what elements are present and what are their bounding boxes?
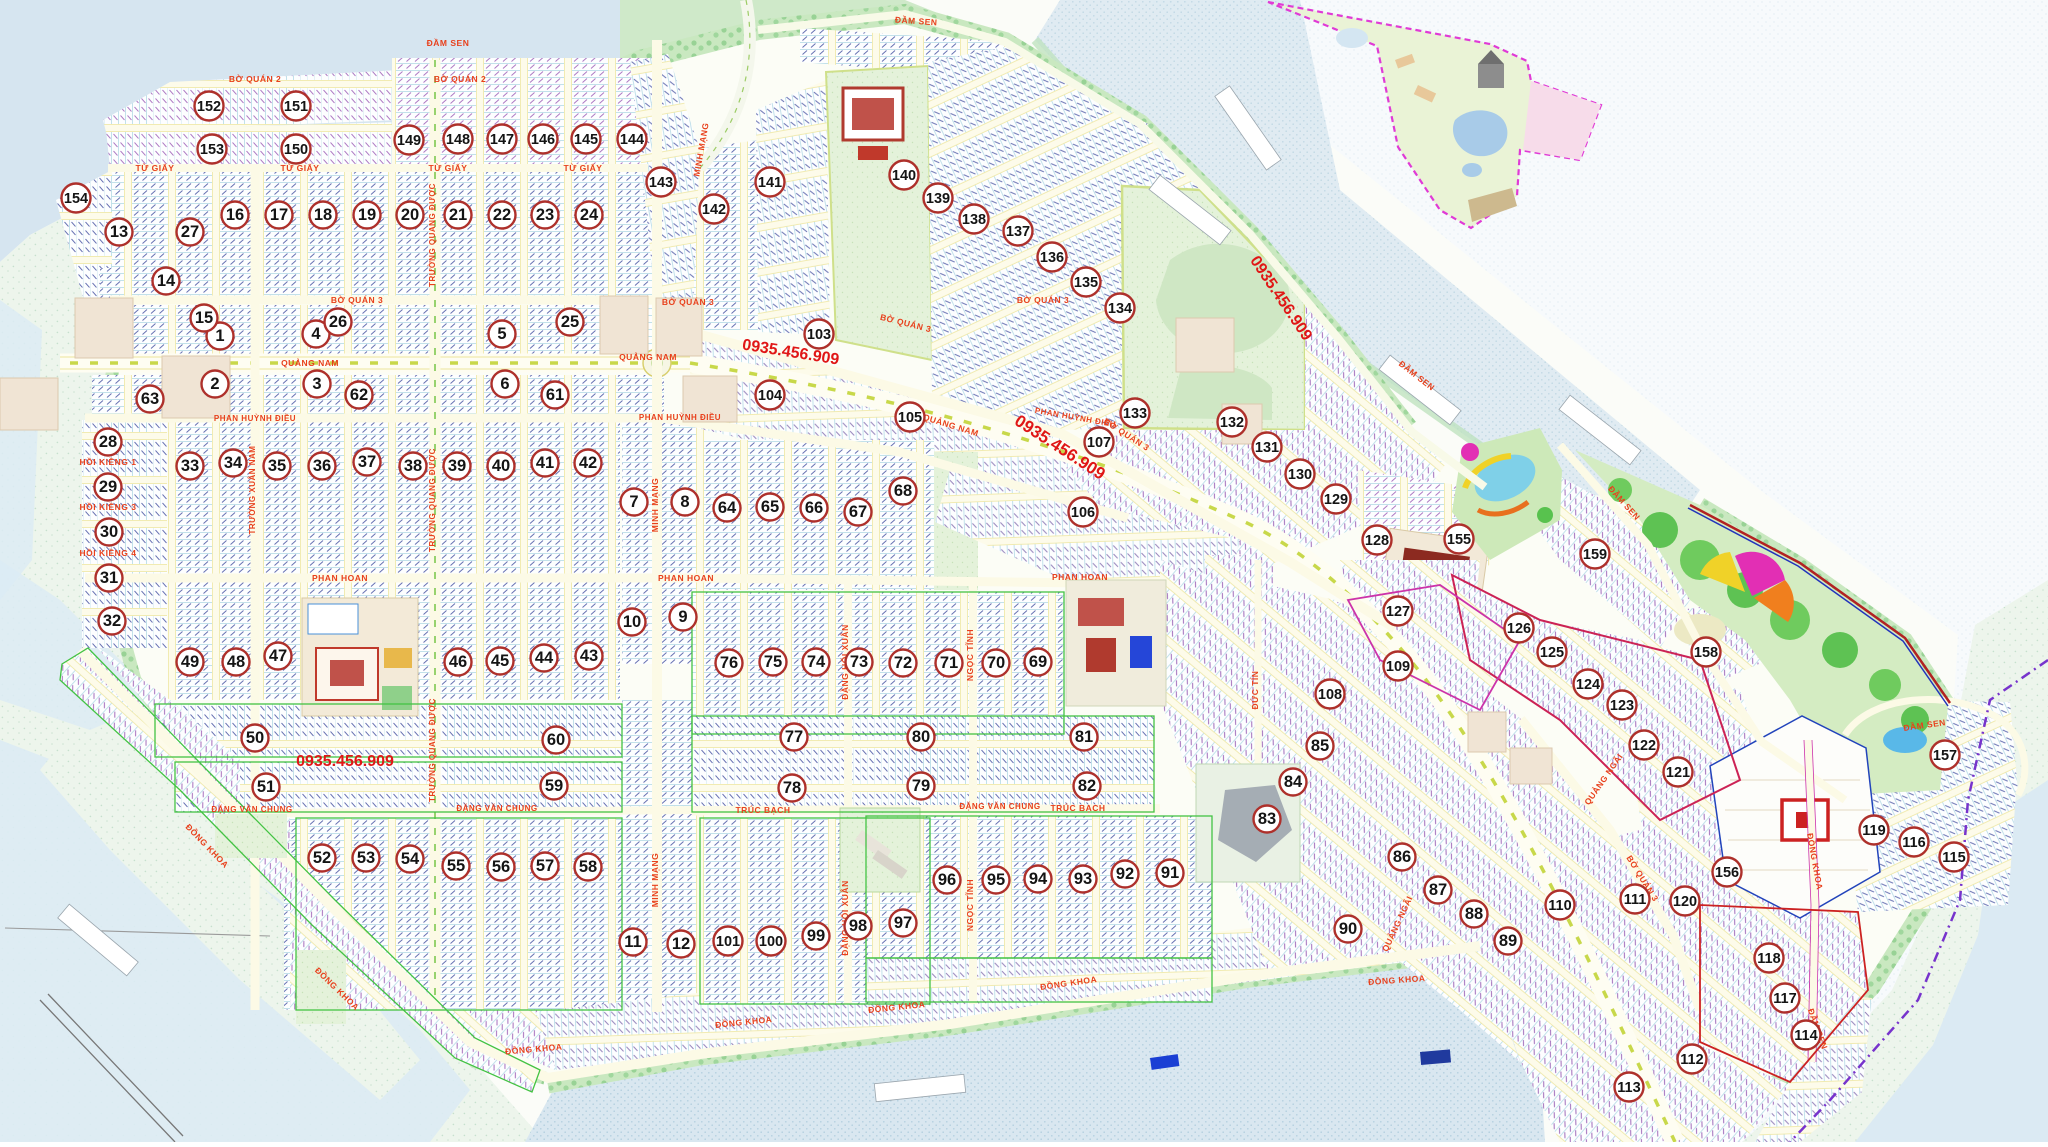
svg-text:TRƯỜNG QUANG ĐƯỢC: TRƯỜNG QUANG ĐƯỢC (428, 448, 437, 552)
svg-text:157: 157 (1933, 748, 1957, 764)
svg-text:66: 66 (805, 499, 823, 517)
svg-text:152: 152 (197, 99, 221, 115)
svg-text:99: 99 (807, 927, 825, 945)
svg-text:PHAN HUỲNH ĐIỀU: PHAN HUỲNH ĐIỀU (639, 412, 721, 422)
svg-text:ĐẶNG VĂN CHUNG: ĐẶNG VĂN CHUNG (211, 805, 292, 814)
svg-text:155: 155 (1447, 532, 1471, 548)
svg-text:55: 55 (447, 857, 465, 875)
svg-text:71: 71 (940, 654, 958, 672)
svg-text:139: 139 (926, 191, 950, 207)
svg-text:BỜ QUÁN 2: BỜ QUÁN 2 (434, 73, 486, 84)
svg-text:76: 76 (720, 654, 738, 672)
svg-text:43: 43 (580, 647, 598, 665)
svg-text:3: 3 (312, 375, 321, 393)
svg-text:57: 57 (536, 857, 554, 875)
svg-text:8: 8 (680, 493, 689, 511)
svg-text:ĐỨC TÍN: ĐỨC TÍN (1249, 671, 1260, 710)
svg-text:111: 111 (1624, 892, 1647, 908)
svg-text:18: 18 (314, 206, 332, 224)
svg-text:52: 52 (313, 849, 331, 867)
svg-text:58: 58 (579, 858, 597, 876)
svg-text:PHAN HOAN: PHAN HOAN (1052, 572, 1108, 582)
svg-text:59: 59 (545, 777, 563, 795)
svg-text:103: 103 (807, 327, 831, 343)
svg-text:87: 87 (1429, 881, 1447, 899)
svg-text:7: 7 (629, 493, 638, 511)
svg-text:19: 19 (358, 206, 376, 224)
svg-text:6: 6 (500, 375, 509, 393)
svg-text:138: 138 (962, 212, 986, 228)
svg-text:TRƯỜNG QUANG ĐƯỢC: TRƯỜNG QUANG ĐƯỢC (428, 183, 437, 287)
svg-text:135: 135 (1074, 275, 1098, 291)
svg-text:27: 27 (181, 223, 199, 241)
svg-text:97: 97 (894, 914, 912, 932)
svg-text:69: 69 (1029, 653, 1047, 671)
svg-text:73: 73 (850, 653, 868, 671)
svg-text:93: 93 (1074, 870, 1092, 888)
svg-text:143: 143 (649, 175, 673, 191)
svg-text:137: 137 (1006, 224, 1030, 240)
svg-text:MINH MẠNG: MINH MẠNG (650, 853, 660, 908)
svg-text:105: 105 (898, 410, 922, 426)
svg-text:124: 124 (1576, 677, 1600, 693)
svg-text:144: 144 (620, 132, 644, 148)
svg-text:35: 35 (268, 457, 286, 475)
svg-text:91: 91 (1161, 864, 1179, 882)
svg-text:79: 79 (912, 777, 930, 795)
svg-text:QUẢNG NAM: QUẢNG NAM (281, 357, 339, 368)
svg-text:107: 107 (1087, 435, 1111, 451)
svg-text:15: 15 (195, 309, 213, 327)
svg-text:149: 149 (397, 133, 421, 149)
svg-text:89: 89 (1499, 932, 1517, 950)
svg-text:100: 100 (759, 934, 783, 950)
svg-text:110: 110 (1548, 898, 1571, 914)
svg-text:108: 108 (1318, 687, 1342, 703)
svg-text:PHAN HOAN: PHAN HOAN (312, 573, 368, 583)
svg-text:122: 122 (1632, 738, 1656, 754)
svg-text:12: 12 (672, 935, 690, 953)
svg-text:150: 150 (284, 142, 308, 158)
svg-text:114: 114 (1794, 1028, 1817, 1044)
svg-text:0935.456.909: 0935.456.909 (296, 753, 394, 770)
svg-text:101: 101 (716, 934, 740, 950)
svg-text:13: 13 (110, 223, 128, 241)
svg-text:16: 16 (226, 206, 244, 224)
svg-text:74: 74 (807, 653, 826, 671)
svg-text:TỪ GIẤY: TỪ GIẤY (429, 162, 468, 173)
svg-text:40: 40 (492, 457, 510, 475)
svg-text:90: 90 (1339, 920, 1357, 938)
svg-text:109: 109 (1386, 659, 1410, 675)
svg-text:TRƯỜNG XUÂN NAM: TRƯỜNG XUÂN NAM (248, 446, 257, 535)
svg-text:92: 92 (1116, 865, 1134, 883)
svg-text:4: 4 (311, 325, 321, 343)
svg-text:88: 88 (1465, 905, 1483, 923)
svg-text:31: 31 (100, 569, 118, 587)
svg-text:TỪ GIẤY: TỪ GIẤY (564, 162, 603, 173)
svg-text:134: 134 (1108, 301, 1132, 317)
svg-text:116: 116 (1902, 835, 1925, 851)
svg-text:80: 80 (912, 728, 930, 746)
svg-text:MINH MẠNG: MINH MẠNG (650, 478, 660, 533)
svg-text:10: 10 (623, 613, 641, 631)
svg-text:65: 65 (761, 498, 779, 516)
svg-text:126: 126 (1507, 621, 1531, 637)
svg-text:119: 119 (1862, 823, 1885, 839)
svg-text:HỒI KIỀNG 1: HỒI KIỀNG 1 (80, 456, 137, 467)
svg-text:84: 84 (1284, 773, 1303, 791)
svg-text:TRÚC BẠCH: TRÚC BẠCH (1050, 802, 1105, 813)
svg-text:34: 34 (224, 454, 243, 472)
svg-text:132: 132 (1220, 415, 1244, 431)
svg-text:39: 39 (448, 457, 466, 475)
svg-text:56: 56 (492, 858, 510, 876)
svg-text:22: 22 (493, 206, 511, 224)
svg-text:83: 83 (1258, 810, 1276, 828)
svg-text:37: 37 (358, 453, 376, 471)
svg-text:TRƯỜNG QUANG ĐƯỢC: TRƯỜNG QUANG ĐƯỢC (428, 698, 437, 802)
svg-text:42: 42 (579, 454, 597, 472)
svg-text:70: 70 (987, 654, 1005, 672)
svg-text:78: 78 (783, 779, 801, 797)
svg-text:151: 151 (284, 99, 308, 115)
svg-text:154: 154 (64, 191, 88, 207)
svg-text:118: 118 (1757, 951, 1780, 967)
svg-text:NGỌC TĨNH: NGỌC TĨNH (965, 629, 975, 681)
svg-text:9: 9 (678, 608, 687, 626)
svg-text:145: 145 (574, 132, 598, 148)
svg-text:29: 29 (99, 478, 117, 496)
svg-text:98: 98 (849, 917, 867, 935)
svg-text:25: 25 (561, 313, 579, 331)
svg-text:TỪ GIẤY: TỪ GIẤY (136, 162, 175, 173)
svg-text:PHAN HOAN: PHAN HOAN (658, 573, 714, 583)
svg-text:146: 146 (531, 132, 555, 148)
svg-text:158: 158 (1694, 645, 1718, 661)
svg-text:120: 120 (1673, 894, 1697, 910)
svg-text:61: 61 (546, 386, 564, 404)
svg-text:50: 50 (246, 729, 264, 747)
svg-text:121: 121 (1666, 765, 1690, 781)
svg-text:128: 128 (1365, 533, 1389, 549)
svg-text:54: 54 (401, 850, 420, 868)
svg-text:125: 125 (1540, 645, 1564, 661)
svg-text:HỒI KIỀNG 4: HỒI KIỀNG 4 (80, 547, 137, 558)
svg-text:28: 28 (99, 433, 117, 451)
svg-text:ĐẶNG VĂN CHUNG: ĐẶNG VĂN CHUNG (456, 804, 537, 813)
svg-text:112: 112 (1680, 1052, 1703, 1068)
svg-text:BỜ QUÁN 3: BỜ QUÁN 3 (662, 296, 714, 307)
svg-text:140: 140 (892, 168, 916, 184)
svg-text:141: 141 (758, 175, 782, 191)
svg-text:BỜ QUÁN 3: BỜ QUÁN 3 (331, 294, 383, 305)
svg-text:49: 49 (181, 653, 199, 671)
svg-text:142: 142 (702, 202, 726, 218)
svg-text:86: 86 (1393, 848, 1411, 866)
svg-text:72: 72 (894, 654, 912, 672)
svg-text:147: 147 (490, 132, 514, 148)
svg-text:131: 131 (1255, 440, 1279, 456)
svg-text:17: 17 (270, 206, 288, 224)
svg-text:64: 64 (718, 499, 737, 517)
svg-text:BỜ QUÁN 2: BỜ QUÁN 2 (229, 73, 281, 84)
svg-text:30: 30 (100, 523, 118, 541)
svg-text:48: 48 (227, 653, 245, 671)
svg-text:ĐẶNG VĂN CHUNG: ĐẶNG VĂN CHUNG (959, 802, 1040, 811)
svg-text:136: 136 (1040, 250, 1064, 266)
svg-text:133: 133 (1123, 406, 1147, 422)
svg-text:115: 115 (1942, 850, 1965, 866)
svg-text:1: 1 (215, 327, 224, 345)
svg-text:36: 36 (313, 457, 331, 475)
svg-text:ĐẦM SEN: ĐẦM SEN (427, 38, 470, 48)
svg-text:23: 23 (536, 206, 554, 224)
svg-text:11: 11 (624, 933, 641, 951)
svg-text:21: 21 (449, 206, 467, 224)
svg-text:44: 44 (535, 649, 554, 667)
svg-text:117: 117 (1773, 991, 1796, 1007)
svg-text:14: 14 (157, 272, 176, 290)
svg-text:75: 75 (764, 653, 782, 671)
svg-text:NGỌC TĨNH: NGỌC TĨNH (965, 879, 975, 931)
svg-text:123: 123 (1610, 698, 1634, 714)
svg-text:68: 68 (894, 482, 912, 500)
svg-text:46: 46 (449, 653, 467, 671)
svg-text:130: 130 (1288, 467, 1312, 483)
svg-text:60: 60 (547, 731, 565, 749)
svg-text:2: 2 (210, 375, 219, 393)
svg-text:BỜ QUÁN 3: BỜ QUÁN 3 (1017, 294, 1069, 305)
svg-text:96: 96 (938, 871, 956, 889)
svg-text:82: 82 (1078, 777, 1096, 795)
svg-text:38: 38 (404, 457, 422, 475)
svg-text:148: 148 (446, 132, 470, 148)
svg-text:47: 47 (269, 647, 287, 665)
svg-text:5: 5 (497, 325, 506, 343)
svg-text:156: 156 (1715, 865, 1739, 881)
svg-text:63: 63 (141, 390, 159, 408)
svg-text:TRÚC BẠCH: TRÚC BẠCH (735, 804, 790, 815)
svg-text:127: 127 (1386, 604, 1410, 620)
svg-text:153: 153 (200, 142, 224, 158)
svg-text:62: 62 (350, 386, 368, 404)
svg-text:24: 24 (580, 206, 599, 224)
svg-text:26: 26 (329, 313, 347, 331)
svg-text:PHAN HUỲNH ĐIỀU: PHAN HUỲNH ĐIỀU (214, 413, 296, 423)
svg-text:104: 104 (758, 388, 782, 404)
svg-text:67: 67 (849, 503, 867, 521)
svg-text:51: 51 (257, 778, 275, 796)
svg-text:95: 95 (987, 871, 1005, 889)
svg-text:129: 129 (1324, 492, 1348, 508)
svg-text:94: 94 (1029, 870, 1048, 888)
svg-text:20: 20 (401, 206, 419, 224)
svg-text:81: 81 (1075, 728, 1093, 746)
svg-text:85: 85 (1311, 737, 1329, 755)
svg-text:33: 33 (181, 457, 199, 475)
svg-text:159: 159 (1583, 547, 1607, 563)
svg-text:QUẢNG NAM: QUẢNG NAM (619, 351, 677, 362)
svg-text:45: 45 (491, 652, 509, 670)
svg-text:113: 113 (1617, 1080, 1640, 1096)
svg-text:53: 53 (357, 849, 375, 867)
svg-text:41: 41 (536, 454, 554, 472)
svg-text:77: 77 (785, 728, 803, 746)
svg-text:32: 32 (103, 612, 121, 630)
svg-text:106: 106 (1071, 505, 1095, 521)
svg-text:HỒI KIỀNG 3: HỒI KIỀNG 3 (80, 501, 137, 512)
